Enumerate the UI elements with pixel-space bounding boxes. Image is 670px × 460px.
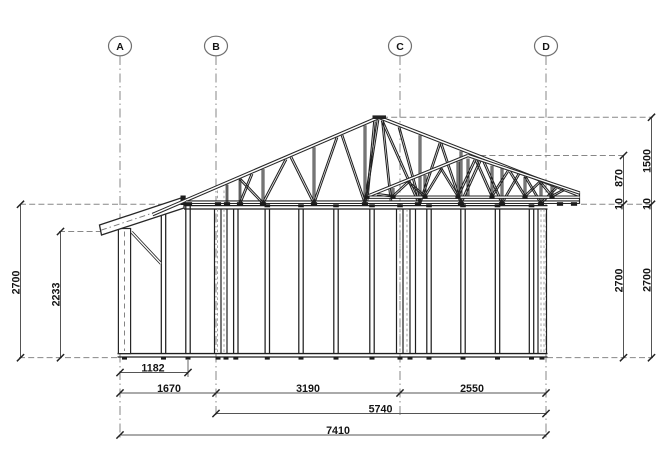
svg-text:C: C — [396, 41, 404, 53]
svg-text:2700: 2700 — [613, 269, 625, 293]
svg-text:2700: 2700 — [641, 268, 653, 292]
svg-text:B: B — [212, 41, 220, 53]
svg-text:D: D — [542, 41, 550, 53]
svg-text:2700: 2700 — [10, 271, 22, 295]
svg-text:870: 870 — [613, 169, 625, 187]
svg-text:1670: 1670 — [157, 383, 181, 395]
svg-text:A: A — [116, 41, 124, 53]
svg-text:3190: 3190 — [296, 383, 320, 395]
svg-text:7410: 7410 — [326, 425, 350, 437]
svg-text:10: 10 — [641, 198, 653, 210]
svg-text:5740: 5740 — [369, 403, 393, 415]
svg-text:1182: 1182 — [141, 362, 164, 374]
svg-text:10: 10 — [613, 198, 625, 210]
svg-text:2550: 2550 — [460, 383, 484, 395]
svg-text:2233: 2233 — [50, 283, 62, 307]
svg-text:1500: 1500 — [641, 149, 653, 173]
